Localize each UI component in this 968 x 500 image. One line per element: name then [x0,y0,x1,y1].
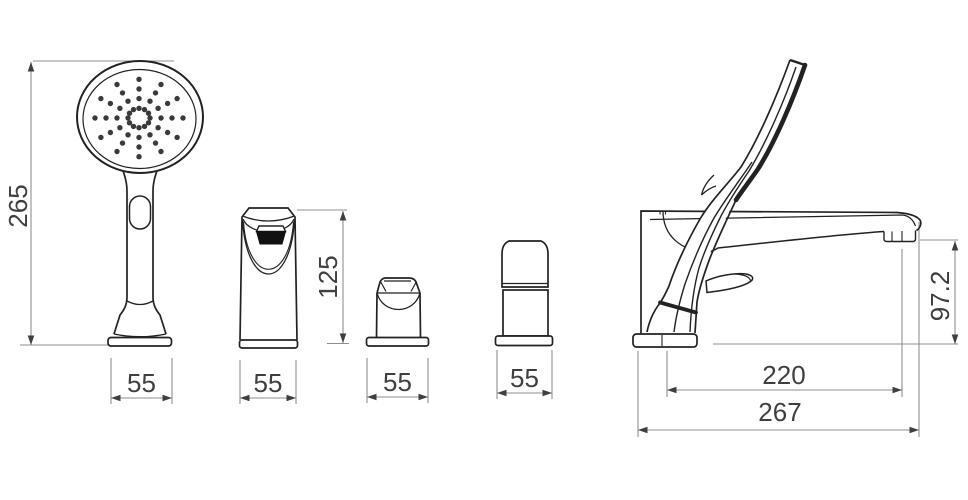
spray-dot [158,115,163,120]
spray-dot [120,90,125,95]
spray-dot [174,135,179,140]
spray-dot [147,115,152,120]
spray-dot [117,106,122,111]
arrow-left [111,395,121,402]
shower-handle-fill [114,149,166,334]
spray-dot [142,107,147,112]
spray-dot [158,149,163,154]
technical-drawing-canvas: 265 125 55 55 55 55 97.2 220 267 [0,0,968,500]
spray-dot [136,154,141,159]
spray-dot [136,106,141,111]
spray-dot [165,130,170,135]
spray-dot [153,140,158,145]
spray-dot [147,99,152,104]
dim-label-spout-reach: 220 [762,360,805,390]
spray-dot [158,82,163,87]
spray-dot [136,125,141,130]
arrow-left [497,390,507,397]
spray-dot [120,140,125,145]
arrow-right [893,387,903,394]
dim-label-spout-height: 97.2 [925,271,955,322]
spray-dot [117,125,122,130]
spray-dot [103,115,108,120]
column-lever-slot [257,232,286,245]
dim-label-overall-depth: 267 [758,397,801,427]
spray-dot [142,124,147,129]
dim-label-shower-height: 265 [3,184,33,227]
arrow-left [667,387,677,394]
diverter-knob-front-view [367,278,429,346]
dim-label-column-width: 55 [254,368,283,398]
handle-body [503,290,548,336]
dim-label-handle-width: 55 [510,363,539,393]
arrow-left [638,427,648,434]
handle-cap-outline [502,241,548,287]
spray-dot [136,144,141,149]
mixer-column-front-view [240,208,298,348]
arrow-up [340,211,347,221]
knob-front-arc [377,293,420,310]
spray-dot [114,149,119,154]
column-lever-top-face [257,226,286,232]
spout-underside [708,232,884,253]
spray-dot [155,106,160,111]
spray-dot [146,111,151,116]
spray-dot [136,135,141,140]
arrow-down [340,334,347,344]
spray-dot [98,135,103,140]
spray-dot [146,120,151,125]
spray-dot [165,101,170,106]
spray-dot [169,115,174,120]
spray-dot [136,96,141,101]
shower-handle-right-edge [153,154,166,334]
side-profile-view [633,60,921,347]
faucet-dimension-drawing: 265 125 55 55 55 55 97.2 220 267 [0,0,968,500]
spray-dot [125,115,130,120]
spray-dot [136,86,141,91]
spray-dot [131,107,136,112]
dim-label-shower-width: 55 [127,368,156,398]
arrow-right [419,394,429,401]
spray-dot [125,99,130,104]
shower-handle-left-edge [114,154,127,334]
dim-label-knob-width: 55 [383,367,412,397]
dim-label-column-height: 125 [313,255,343,298]
arrow-right [543,390,553,397]
arrow-down [952,335,959,345]
side-base-flange [633,334,697,347]
knob-cap-outline [377,278,420,293]
spray-dot [127,120,132,125]
spray-dot [153,90,158,95]
shower-bell-bottom [114,334,166,337]
spray-dot [174,96,179,101]
spray-dot [136,77,141,82]
spray-dot [180,115,185,120]
spray-dot [131,124,136,129]
wand-clip-notch [702,175,717,195]
spray-dot [127,111,132,116]
spray-dot [114,115,119,120]
spray-dot [147,132,152,137]
arrow-right [287,395,297,402]
spray-dot [108,130,113,135]
spray-dot [98,96,103,101]
arrow-right [910,427,920,434]
valve-handle-front-view [496,241,553,346]
wand-inner-line-a [690,67,796,332]
shower-base-flange [108,338,172,347]
knob-body-sides [377,293,421,338]
knob-base-flange [367,338,429,347]
wand-fill [647,60,805,333]
spout-aerator [884,231,916,242]
arrow-up [952,241,959,251]
spray-dot [114,82,119,87]
arrow-left [367,394,377,401]
handle-base-flange [496,336,553,346]
spray-dot [155,125,160,130]
arrow-down [28,336,35,346]
spray-dot [92,115,97,120]
arrow-right [163,395,173,402]
column-base-flange [240,340,298,348]
arrow-left [240,395,250,402]
spray-dot [125,132,130,137]
hand-shower-front-view [77,61,203,346]
spray-dot [108,101,113,106]
spout-second-line [650,215,916,226]
arrow-up [28,62,35,72]
